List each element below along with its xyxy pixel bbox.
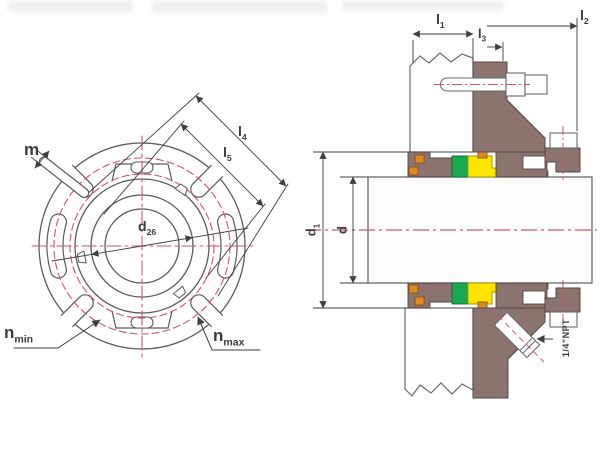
seal-face-yellow-top (468, 156, 498, 177)
housing-bottom (405, 308, 473, 396)
label-d1: d1 (305, 224, 322, 236)
dim-l3 (487, 42, 503, 61)
section-view (305, 18, 597, 398)
drawing-linework (0, 0, 600, 454)
label-d26: d26 (138, 219, 156, 236)
label-d: d (336, 226, 353, 234)
drawing-canvas: m l4 l5 d26 nmin nmax l1 l3 l2 d1 d 1/4"… (0, 0, 600, 454)
label-l4: l4 (238, 124, 247, 141)
label-l1: l1 (436, 12, 445, 29)
set-screw-bottom-2 (409, 285, 418, 293)
seal-face-green-bottom (452, 283, 468, 304)
bolt-slot-sw (61, 295, 93, 327)
label-n-min: nmin (4, 324, 33, 345)
label-l5: l5 (223, 145, 232, 162)
set-screw-top-2 (409, 167, 418, 175)
seal-face-green-top (452, 156, 468, 177)
dim-l4-l5 (85, 93, 288, 296)
set-screw-bottom-1 (415, 297, 424, 305)
retainer-window-top (523, 156, 545, 169)
drive-lug-west (77, 251, 86, 264)
label-m: m (24, 141, 39, 162)
seal-face-yellow-bottom (468, 283, 498, 304)
label-npt: 1/4"NPT (562, 319, 574, 357)
housing-top (410, 53, 473, 152)
label-l3: l3 (478, 27, 486, 44)
set-screw-top-1 (415, 155, 424, 163)
bolt-slot-se (191, 295, 223, 327)
drive-lug-ne (175, 183, 189, 196)
bolt-slot-ne (191, 165, 223, 197)
label-n-max: nmax (213, 327, 244, 348)
label-l2: l2 (580, 8, 589, 25)
retainer-window-bottom (523, 291, 545, 304)
